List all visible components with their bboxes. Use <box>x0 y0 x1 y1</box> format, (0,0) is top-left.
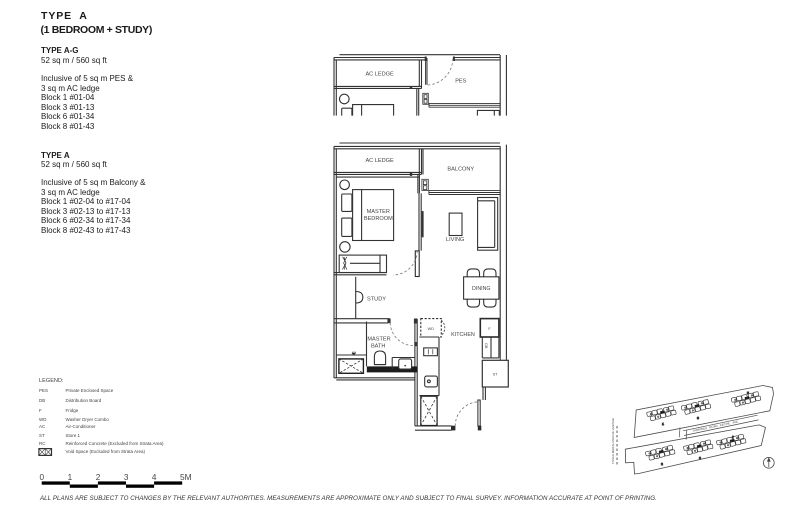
svg-text:MASTER: MASTER <box>367 337 390 343</box>
svg-text:2: 2 <box>661 462 663 466</box>
svg-text:3: 3 <box>124 473 129 482</box>
svg-text:WD: WD <box>428 327 435 331</box>
svg-text:BALCONY: BALCONY <box>447 167 474 173</box>
svg-text:DINING: DINING <box>472 286 491 292</box>
svg-text:5M: 5M <box>180 472 192 482</box>
svg-text:1: 1 <box>662 422 664 426</box>
svg-text:AC LEDGE: AC LEDGE <box>365 158 394 164</box>
svg-text:3: 3 <box>697 416 699 420</box>
svg-text:2: 2 <box>96 473 101 482</box>
svg-text:4: 4 <box>152 473 157 482</box>
svg-text:MASTER: MASTER <box>367 209 390 215</box>
svg-text:AC LEDGE: AC LEDGE <box>365 72 394 78</box>
svg-text:ST: ST <box>493 372 499 376</box>
svg-text:1: 1 <box>68 473 73 482</box>
svg-text:DB: DB <box>484 343 488 349</box>
svg-text:F: F <box>488 327 491 331</box>
svg-text:PES: PES <box>455 79 466 85</box>
svg-text:KITCHEN: KITCHEN <box>451 332 475 338</box>
svg-text:0: 0 <box>40 473 45 482</box>
svg-text:BEDROOM: BEDROOM <box>364 216 393 222</box>
svg-text:TANAH MERAH KECHIL AVENUE: TANAH MERAH KECHIL AVENUE <box>611 418 615 464</box>
svg-text:STUDY: STUDY <box>367 297 386 303</box>
svg-text:BATH: BATH <box>371 344 386 350</box>
svg-text:LIVING: LIVING <box>446 237 464 243</box>
